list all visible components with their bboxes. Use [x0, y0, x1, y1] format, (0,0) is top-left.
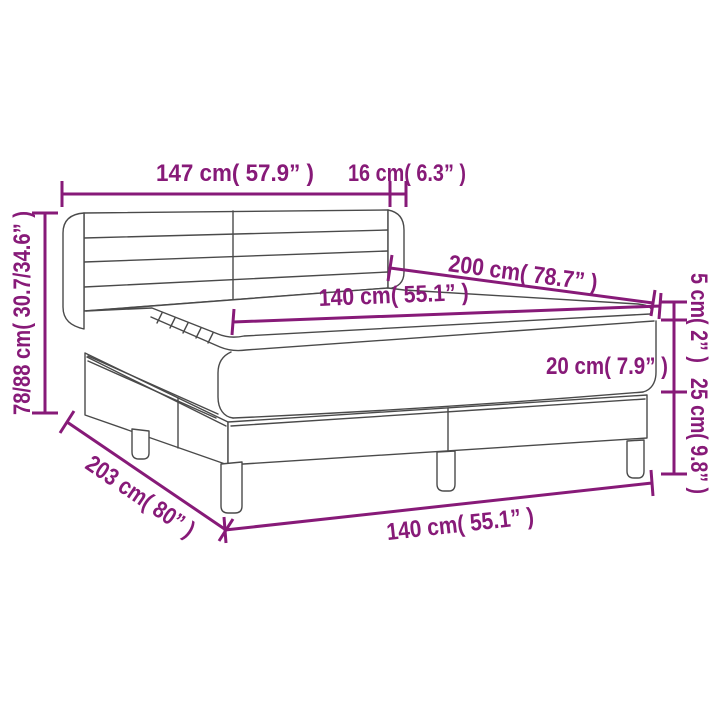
bed-leg-front-left [221, 462, 242, 513]
dim-line-height-stack [661, 302, 687, 474]
bed-leg-front-middle [437, 451, 455, 491]
dim-label-wing-depth: 16 cm( 6.3” ) [348, 160, 466, 187]
bed-diagram-canvas: 147 cm( 57.9” ) 16 cm( 6.3” ) 200 cm( 78… [0, 0, 720, 720]
dim-label-topper-height: 5 cm( 2” ) [685, 273, 712, 363]
headboard-right-wing [388, 210, 404, 289]
dim-label-base-length: 203 cm( 80” ) [81, 450, 200, 543]
dim-label-overall-height: 78/88 cm( 30.7/34.6” ) [9, 211, 36, 415]
bed-leg-back-left [132, 429, 149, 459]
mattress-left-edge [218, 352, 233, 418]
dim-label-mattress-height: 20 cm( 7.9” ) [546, 353, 668, 380]
headboard-left-wing [63, 213, 84, 329]
dim-label-headboard-width: 147 cm( 57.9” ) [156, 160, 314, 187]
dim-label-bed-length: 200 cm( 78.7” ) [447, 250, 599, 297]
bed-leg-front-right [627, 440, 644, 478]
dim-label-base-height: 25 cm( 9.8” ) [685, 378, 712, 494]
product-dimension-diagram: 147 cm( 57.9” ) 16 cm( 6.3” ) 200 cm( 78… [0, 0, 720, 720]
